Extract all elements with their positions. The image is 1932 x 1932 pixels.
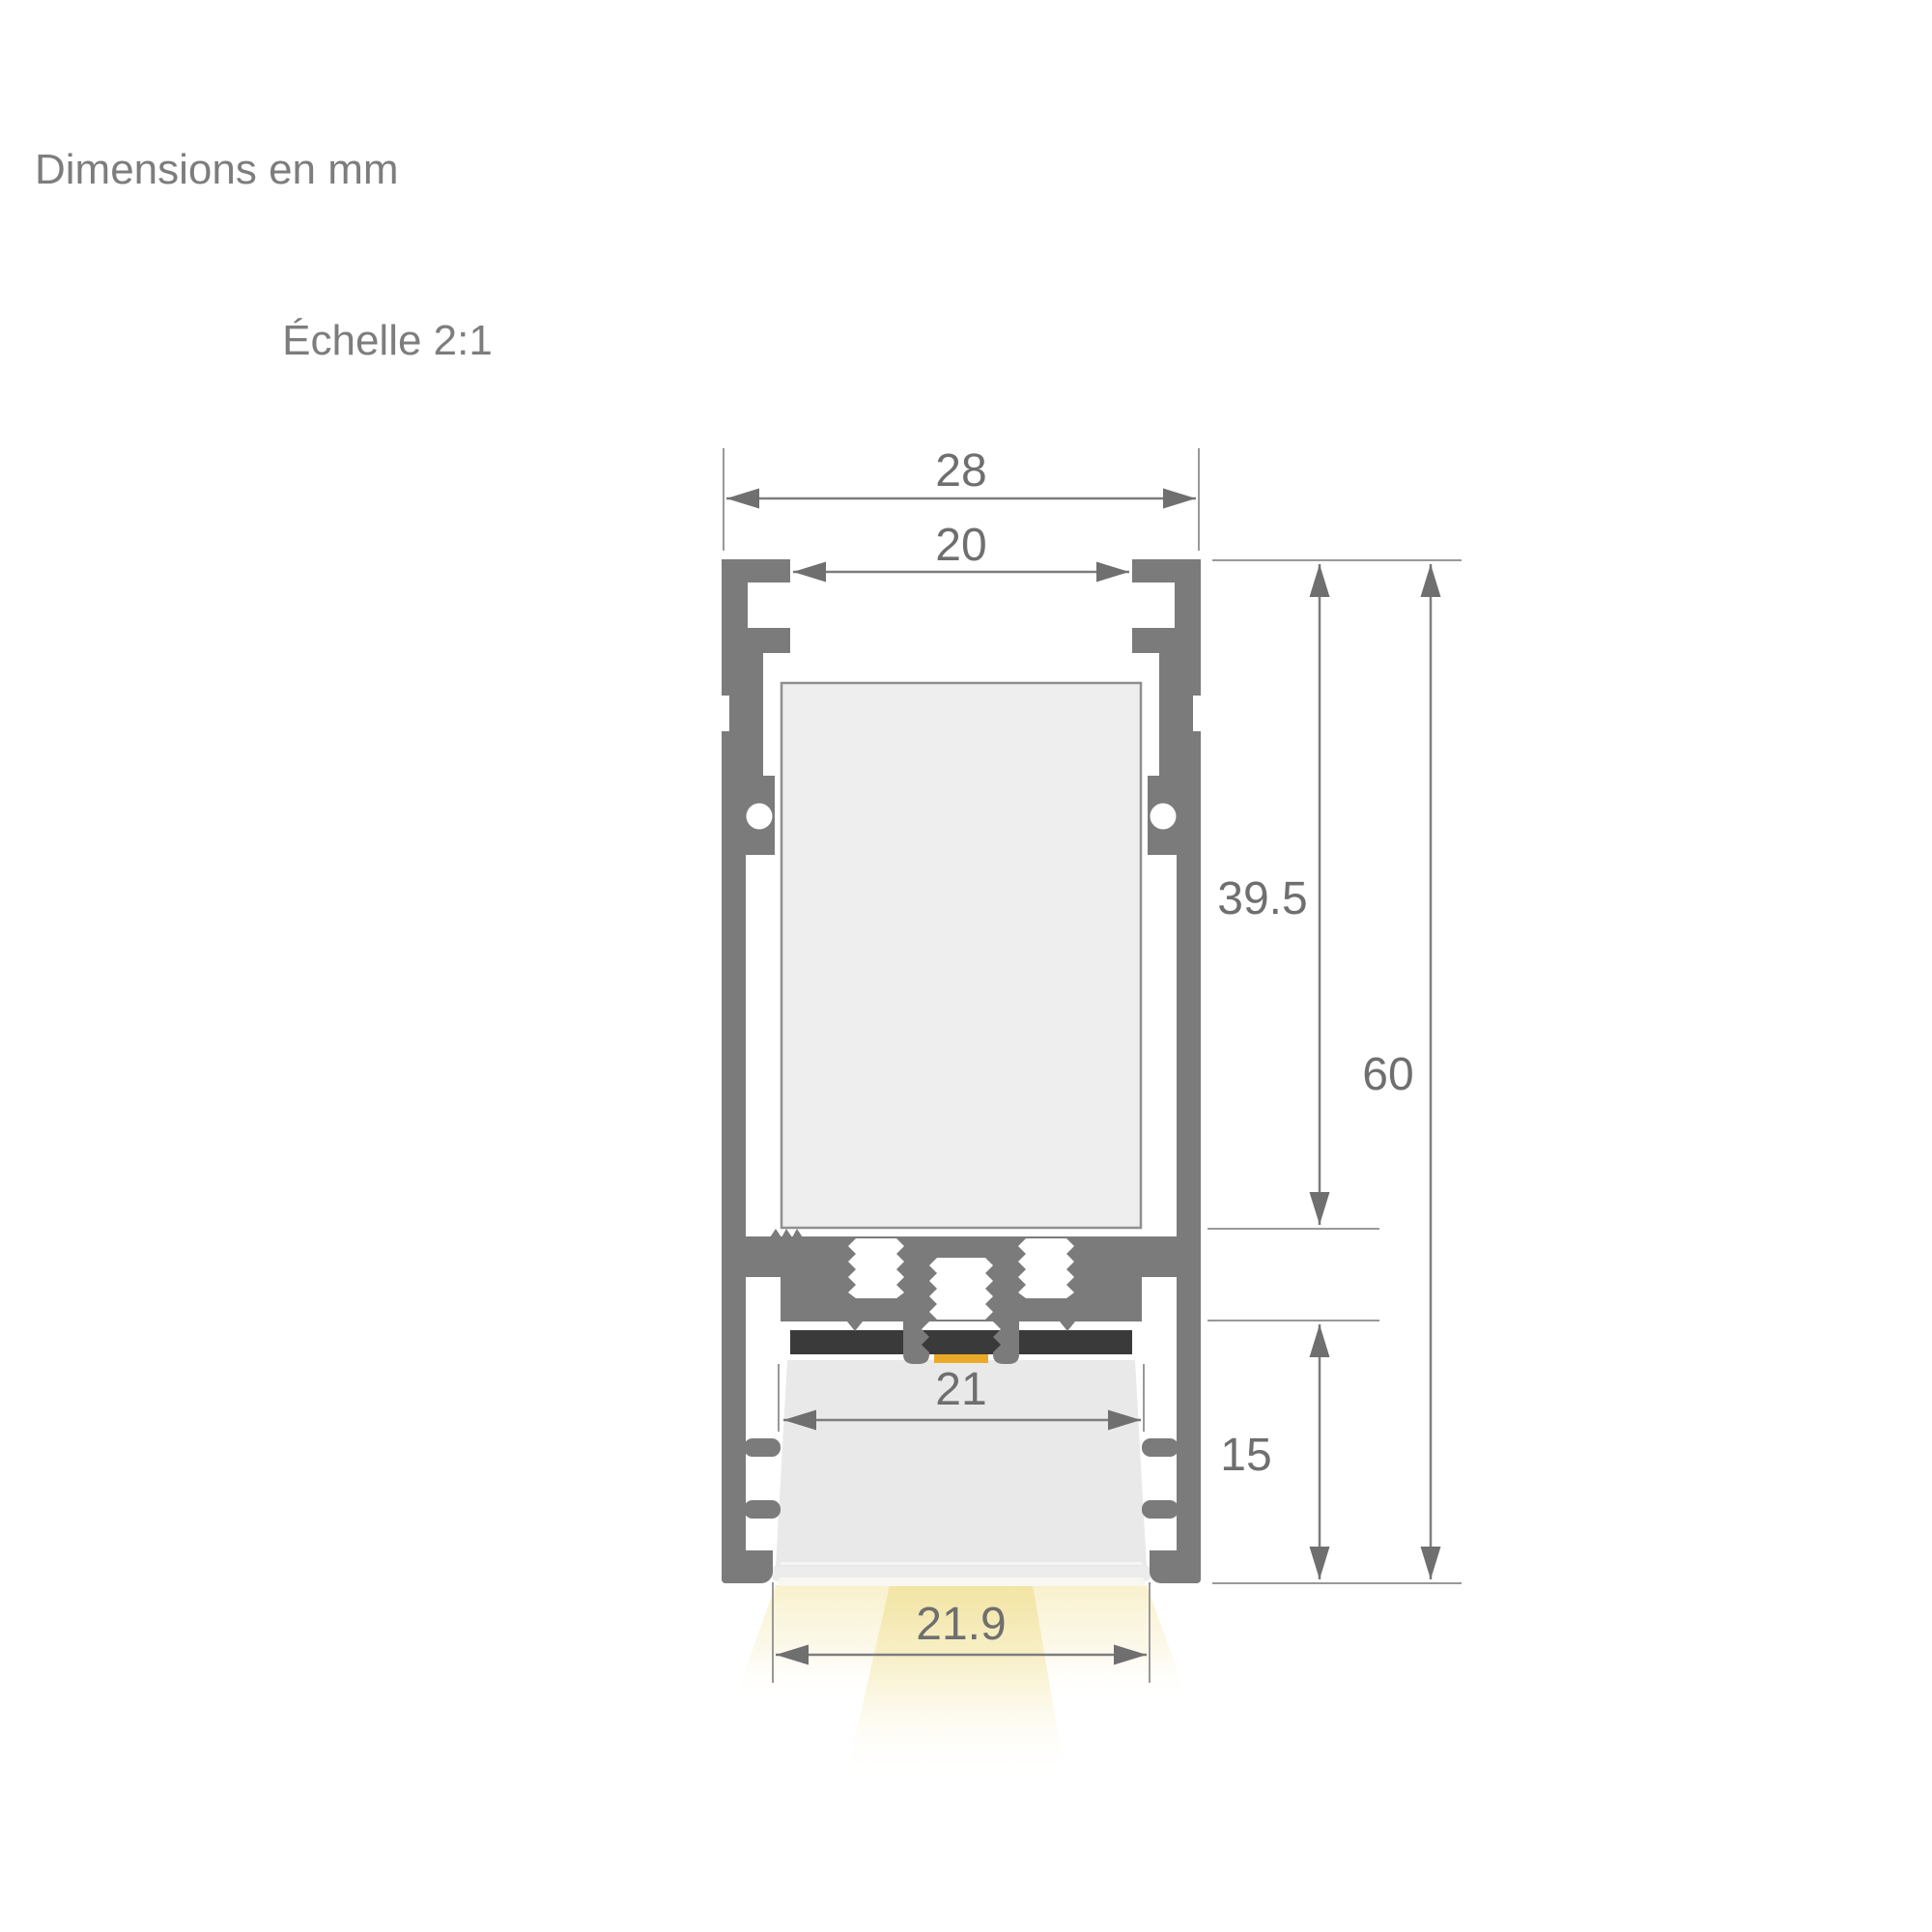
profile-cross-section-drawing: Dimensions en mm Échelle 2:1 [0,0,1932,1932]
threaded-slot-left [848,1238,904,1298]
plate-v-bump-left [847,1321,863,1331]
plate-v-bump-right [1060,1321,1075,1331]
profile-right-wall [1132,559,1201,1583]
plate-thread-mark [770,1229,803,1237]
led-pcb-bar [790,1330,1132,1354]
profile-left-wall [722,559,790,1583]
dim-label-total-height: 60 [1362,1049,1413,1100]
page-title: Dimensions en mm [35,146,399,193]
central-screw-bore [929,1258,993,1320]
dim-label-outer-width: 28 [935,445,986,497]
inner-cavity [781,683,1141,1228]
technical-drawing-page: Dimensions en mm Échelle 2:1 [0,0,1932,1932]
scale-label: Échelle 2:1 [282,317,493,364]
threaded-slot-right [1018,1238,1074,1298]
lens-bottom-lip [778,1577,1145,1586]
dim-label-diffuser-width: 21 [935,1364,986,1415]
dim-label-top-opening: 20 [935,520,986,571]
dim-label-lower-height: 15 [1220,1430,1271,1481]
side-screw-channel-right [1142,1277,1169,1345]
lens-seam-line [781,1562,1142,1565]
side-screw-channel-left [753,1277,781,1345]
dim-label-upper-height: 39.5 [1217,873,1307,924]
dim-label-light-opening: 21.9 [916,1599,1006,1650]
